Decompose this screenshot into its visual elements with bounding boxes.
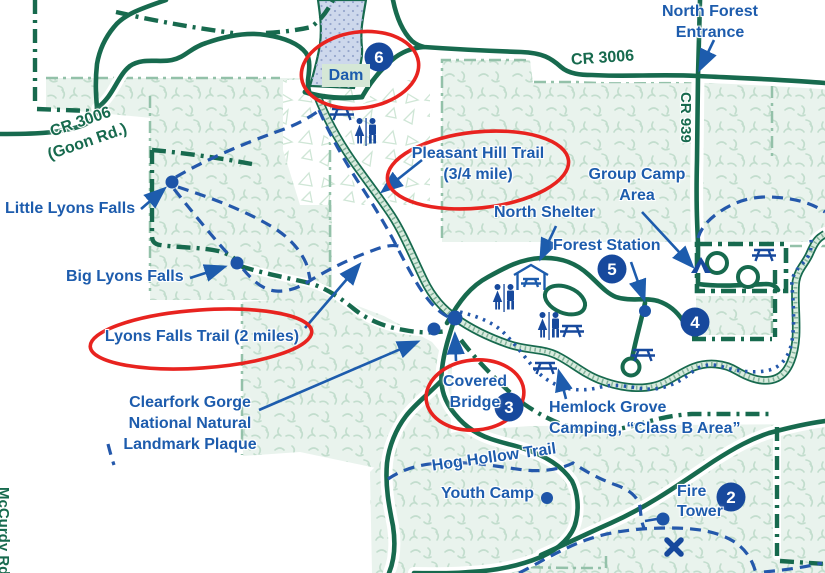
- poi-dot: [639, 305, 651, 317]
- poi-dot: [231, 257, 244, 270]
- badge-6: 6: [365, 43, 394, 72]
- trail-fragment: [108, 444, 114, 465]
- badge-2: 2: [717, 483, 746, 512]
- badge-number: 6: [374, 48, 383, 67]
- badge-number: 2: [726, 488, 735, 507]
- poi-dot: [428, 323, 441, 336]
- badge-5: 5: [598, 255, 627, 284]
- badge-number: 3: [504, 398, 513, 417]
- restroom-icon: [538, 312, 559, 340]
- poi-dot: [541, 492, 553, 504]
- poi-dot: [448, 311, 463, 326]
- badge-number: 4: [690, 313, 700, 332]
- badge-3: 3: [495, 393, 524, 422]
- picnic-table-icon: [533, 363, 557, 374]
- badge-4: 4: [681, 308, 710, 337]
- reservoir: [310, 0, 366, 88]
- badge-number: 5: [607, 260, 616, 279]
- map-canvas: 6 5 4 3 2: [0, 0, 825, 573]
- poi-dot: [657, 513, 670, 526]
- park-trail-map: 6 5 4 3 2 North Forest Entrance CR 3006 …: [0, 0, 825, 573]
- poi-dot: [166, 176, 179, 189]
